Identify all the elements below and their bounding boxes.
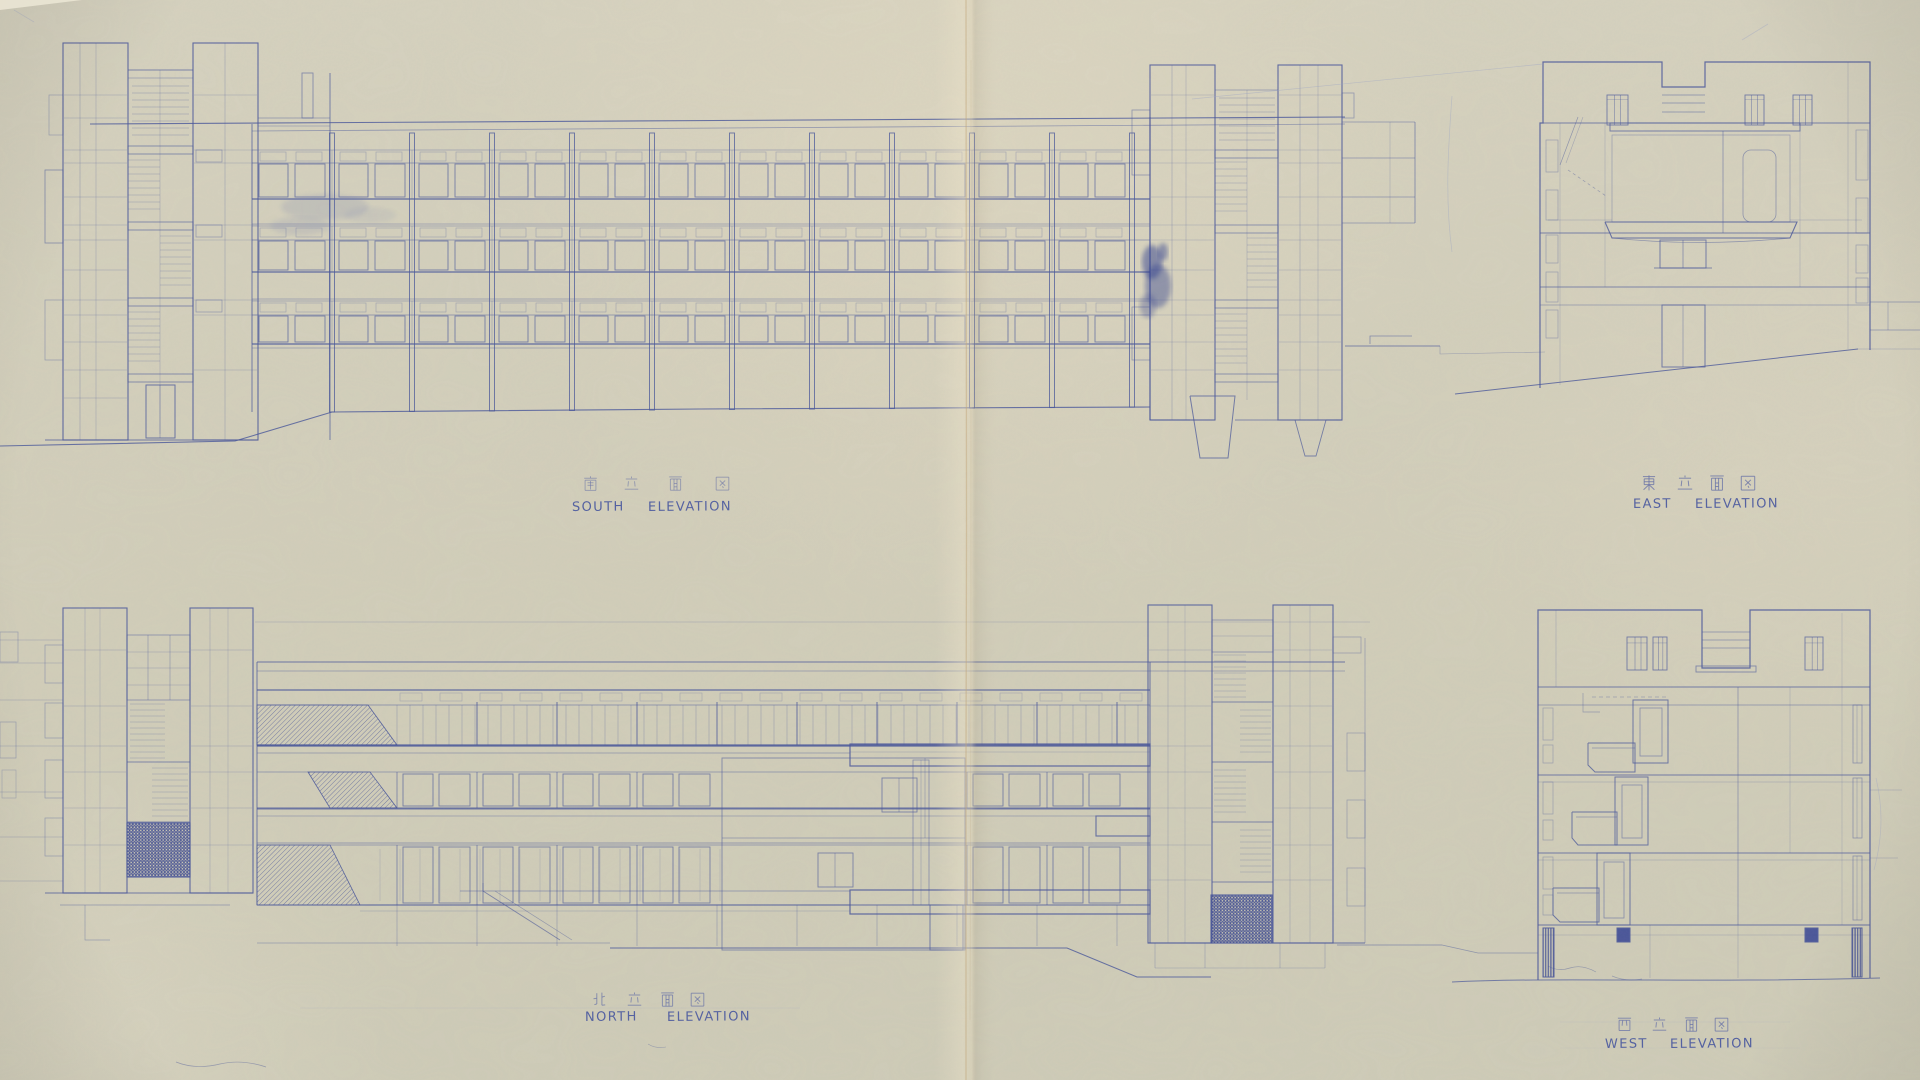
- drawing-canvas: SOUTHELEVATIONEASTELEVATIONNORTHELEVATIO…: [0, 0, 1920, 1080]
- blueprint-sheet: SOUTHELEVATIONEASTELEVATIONNORTHELEVATIO…: [0, 0, 1920, 1080]
- vignette: [0, 0, 1920, 1080]
